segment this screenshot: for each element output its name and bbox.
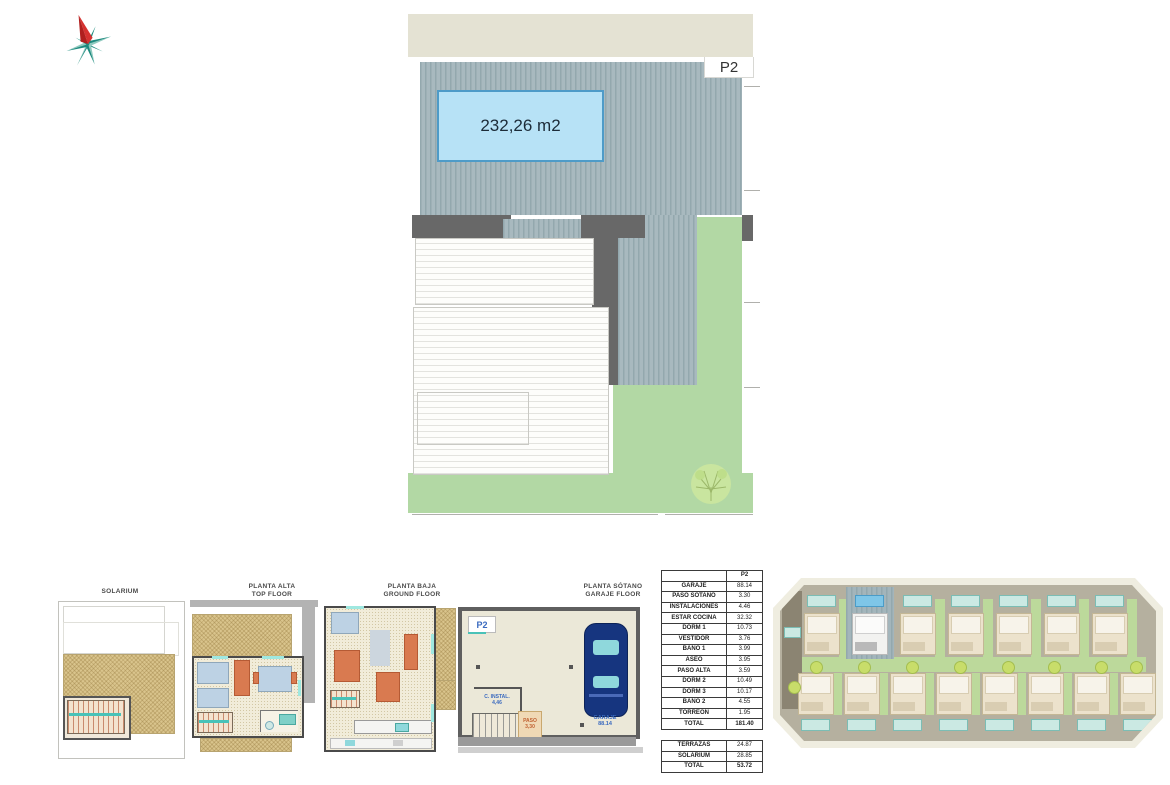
bathroom bbox=[260, 710, 298, 732]
area-table-value-cell: 3.95 bbox=[727, 655, 763, 666]
column bbox=[580, 723, 584, 727]
area-table-gap bbox=[662, 729, 763, 740]
house-roof-band bbox=[1077, 702, 1099, 711]
stairs bbox=[67, 700, 125, 734]
overview-house bbox=[900, 613, 936, 655]
solarium-plan bbox=[58, 601, 185, 759]
car-windshield bbox=[593, 640, 619, 655]
area-table-row: BAÑO 13.99 bbox=[662, 645, 763, 656]
appliance bbox=[393, 740, 403, 746]
area-table-room-cell: TERRAZAS bbox=[662, 740, 727, 751]
garaje-area-value: 88.14 bbox=[588, 721, 622, 727]
area-table-room-cell: PASO SOTANO bbox=[662, 592, 727, 603]
bed-double bbox=[258, 666, 292, 692]
window bbox=[431, 704, 434, 722]
area-table-room-cell: SOLARIUM bbox=[662, 751, 727, 762]
plot-label-chip bbox=[807, 595, 836, 607]
area-table-value-cell: 10.17 bbox=[727, 687, 763, 698]
bed bbox=[197, 662, 229, 684]
area-table-row: P2 bbox=[662, 571, 763, 582]
overview-house bbox=[890, 673, 926, 715]
house-roof-highlight bbox=[985, 676, 1015, 694]
house-roof-band bbox=[847, 702, 869, 711]
plot-green bbox=[925, 673, 934, 715]
tree-icon bbox=[1048, 661, 1061, 674]
planta-alta-title: PLANTA ALTA TOP FLOOR bbox=[222, 583, 322, 599]
plan-sheet: 232,26 m2 P2 SOLARIUM bbox=[0, 0, 1170, 785]
area-table-value-cell: 4.55 bbox=[727, 698, 763, 709]
plot-label-chip bbox=[847, 719, 876, 731]
area-table-row: VESTIDOR3.76 bbox=[662, 634, 763, 645]
tree-icon bbox=[858, 661, 871, 674]
compass-rose-icon bbox=[52, 8, 124, 80]
boundary-tick bbox=[744, 86, 760, 87]
roof-inset-outline bbox=[417, 392, 529, 445]
plot-label-chip bbox=[1095, 595, 1124, 607]
sink bbox=[395, 723, 409, 732]
boundary-tick bbox=[744, 302, 760, 303]
area-table-room-cell: GARAJE bbox=[662, 581, 727, 592]
area-table-row: INSTALACIONES4.46 bbox=[662, 602, 763, 613]
plot-green bbox=[983, 599, 993, 657]
area-table-value-cell: 1.95 bbox=[727, 708, 763, 719]
area-table-value-cell: 24.87 bbox=[727, 740, 763, 751]
area-table-row: ASEO3.95 bbox=[662, 655, 763, 666]
plot-area-label: 232,26 m2 bbox=[480, 116, 560, 136]
house-roof-highlight bbox=[855, 616, 885, 634]
tree-icon bbox=[1002, 661, 1015, 674]
area-table-row: PASO SOTANO3.30 bbox=[662, 592, 763, 603]
stair-rail bbox=[199, 720, 229, 723]
area-table-row: DORM 110.73 bbox=[662, 623, 763, 634]
garage-plot-label: P2 bbox=[476, 620, 487, 630]
area-table: P2GARAJE88.14PASO SOTANO3.30INSTALACIONE… bbox=[661, 570, 763, 773]
area-table-value-cell: 10.73 bbox=[727, 623, 763, 634]
area-table-row: TOTAL53.72 bbox=[662, 762, 763, 773]
main-site-plan: 232,26 m2 P2 bbox=[408, 14, 753, 514]
floor-interior bbox=[324, 606, 436, 752]
wall-side-upper bbox=[592, 238, 618, 307]
overview-house bbox=[948, 613, 984, 655]
planta-sotano-plan: P2 C. INSTAL. 4,46 PASO 3,30 bbox=[458, 603, 643, 755]
roof-notch bbox=[503, 219, 581, 238]
plot-chip-underline bbox=[468, 632, 486, 634]
area-table-room-cell: DORM 3 bbox=[662, 687, 727, 698]
house-roof-highlight bbox=[847, 676, 877, 694]
plot-label-chip bbox=[1047, 595, 1076, 607]
house-roof-highlight bbox=[939, 676, 969, 694]
planta-baja-plan bbox=[322, 600, 455, 757]
house-roof-highlight bbox=[951, 616, 981, 634]
planta-baja-title-line1: PLANTA BAJA bbox=[360, 583, 464, 591]
plot-green bbox=[1079, 599, 1089, 657]
plot-label-chip bbox=[903, 595, 932, 607]
area-table-room-cell: TOTAL bbox=[662, 719, 727, 730]
plot-label-chip bbox=[1031, 719, 1060, 731]
roof-deck-right bbox=[618, 215, 697, 385]
car-rear-window bbox=[593, 676, 619, 688]
area-table-row: SOLARIUM28.85 bbox=[662, 751, 763, 762]
bathtub bbox=[279, 714, 296, 725]
area-table-value-cell: 3.76 bbox=[727, 634, 763, 645]
plot-green bbox=[1063, 673, 1072, 715]
overview-house bbox=[804, 613, 840, 655]
house-roof-band bbox=[985, 702, 1007, 711]
column bbox=[476, 665, 480, 669]
house-roof-band bbox=[807, 642, 829, 651]
area-table-value-cell: 28.85 bbox=[727, 751, 763, 762]
area-table-room-cell: ESTAR COCINA bbox=[662, 613, 727, 624]
plot-green bbox=[1109, 673, 1118, 715]
house-roof-band bbox=[855, 642, 877, 651]
tree-icon bbox=[810, 661, 823, 674]
house-roof-highlight bbox=[1123, 676, 1153, 694]
street-strip bbox=[408, 14, 753, 57]
site-overview bbox=[773, 578, 1163, 748]
planta-sotano-title-line2: GARAJE FLOOR bbox=[558, 591, 668, 599]
plot-label-chip bbox=[1077, 719, 1106, 731]
overview-house bbox=[1092, 613, 1128, 655]
area-table-value-cell: P2 bbox=[727, 571, 763, 582]
house-roof-band bbox=[1095, 642, 1117, 651]
area-table-room-cell: ASEO bbox=[662, 655, 727, 666]
tree-icon bbox=[1095, 661, 1108, 674]
house-roof-band bbox=[903, 642, 925, 651]
house-roof-highlight bbox=[807, 616, 837, 634]
paso-area-value: 3,30 bbox=[519, 724, 541, 730]
plot-green bbox=[1017, 673, 1026, 715]
stair-rail bbox=[69, 713, 121, 716]
house-roof-highlight bbox=[999, 616, 1029, 634]
area-table-row: BAÑO 24.55 bbox=[662, 698, 763, 709]
house-roof-lower bbox=[413, 307, 609, 475]
planta-alta-title-line2: TOP FLOOR bbox=[222, 591, 322, 599]
plot-label-chip bbox=[893, 719, 922, 731]
nightstand bbox=[291, 672, 297, 684]
overview-house bbox=[844, 673, 880, 715]
area-table-value-cell: 3.99 bbox=[727, 645, 763, 656]
wall-sliver-right bbox=[742, 215, 753, 241]
area-table-row: TERRAZAS24.87 bbox=[662, 740, 763, 751]
boundary-tick bbox=[744, 387, 760, 388]
area-table-value-cell: 32.32 bbox=[727, 613, 763, 624]
rug bbox=[370, 630, 390, 666]
window bbox=[346, 606, 364, 609]
wardrobe bbox=[234, 660, 250, 696]
area-table-value-cell: 88.14 bbox=[727, 581, 763, 592]
area-table-value-cell: 3.59 bbox=[727, 666, 763, 677]
bed bbox=[197, 688, 229, 708]
area-table-value-cell: 3.30 bbox=[727, 592, 763, 603]
nightstand bbox=[253, 672, 259, 684]
overview-house bbox=[1044, 613, 1080, 655]
area-table-value-cell: 53.72 bbox=[727, 762, 763, 773]
tree-icon bbox=[788, 681, 801, 694]
house-roof-upper bbox=[415, 238, 594, 305]
sink bbox=[265, 721, 274, 730]
window bbox=[298, 680, 301, 696]
area-table-row: DORM 310.17 bbox=[662, 687, 763, 698]
overview-house bbox=[1028, 673, 1064, 715]
area-table-room-cell: BAÑO 1 bbox=[662, 645, 727, 656]
car-detail bbox=[589, 694, 623, 697]
garaje-label: GARAJE 88.14 bbox=[588, 715, 622, 727]
area-table-room-cell: INSTALACIONES bbox=[662, 602, 727, 613]
area-table-room-cell bbox=[662, 571, 727, 582]
car-icon bbox=[584, 623, 628, 717]
house-roof-highlight bbox=[1031, 676, 1061, 694]
area-table-room-cell: VESTIDOR bbox=[662, 634, 727, 645]
plot-green bbox=[1127, 599, 1137, 657]
garage-plot-chip: P2 bbox=[468, 616, 496, 633]
planta-sotano-title-line1: PLANTA SÓTANO bbox=[558, 583, 668, 591]
appliance bbox=[345, 740, 355, 746]
tree-icon bbox=[954, 661, 967, 674]
garage-interior: P2 C. INSTAL. 4,46 PASO 3,30 bbox=[458, 607, 640, 739]
house-roof-highlight bbox=[1095, 616, 1125, 634]
wall-top-left bbox=[412, 215, 511, 238]
area-table-row: ESTAR COCINA32.32 bbox=[662, 613, 763, 624]
planta-baja-title-line2: GROUND FLOOR bbox=[360, 591, 464, 599]
kitchen-units bbox=[334, 650, 360, 682]
area-table-row: TORREÓN1.95 bbox=[662, 708, 763, 719]
area-table-body: P2GARAJE88.14PASO SOTANO3.30INSTALACIONE… bbox=[662, 571, 763, 773]
window bbox=[431, 634, 434, 654]
area-table-value-cell: 181.40 bbox=[727, 719, 763, 730]
stair-rail bbox=[332, 697, 356, 700]
plot-label-chip bbox=[939, 719, 968, 731]
tree-icon bbox=[686, 461, 736, 511]
house-roof-band bbox=[801, 702, 823, 711]
neighbor-roof-strip bbox=[190, 600, 318, 607]
terrace-upper bbox=[192, 614, 292, 658]
window bbox=[262, 656, 284, 659]
house-roof-band bbox=[1031, 702, 1053, 711]
house-roof-highlight bbox=[801, 676, 831, 694]
area-table-room-cell: DORM 2 bbox=[662, 676, 727, 687]
plot-label-chip bbox=[801, 719, 830, 731]
plot-green bbox=[833, 673, 842, 715]
plot-label-chip bbox=[855, 595, 884, 607]
planta-sotano-title: PLANTA SÓTANO GARAJE FLOOR bbox=[558, 583, 668, 599]
plot-id-label: P2 bbox=[720, 59, 738, 76]
instal-room: C. INSTAL. 4,46 bbox=[474, 687, 522, 715]
plot-label-chip bbox=[999, 595, 1028, 607]
plot-green bbox=[1155, 673, 1164, 715]
planta-alta-plan bbox=[190, 600, 318, 757]
house-roof-band bbox=[893, 702, 915, 711]
house-roof-highlight bbox=[893, 676, 923, 694]
plot-green bbox=[971, 673, 980, 715]
overview-house bbox=[936, 673, 972, 715]
tree-icon bbox=[906, 661, 919, 674]
kitchen-lower-counter bbox=[330, 738, 432, 749]
access-chip bbox=[784, 627, 801, 638]
terrace-lower bbox=[200, 738, 292, 752]
plot-id-box: P2 bbox=[704, 57, 754, 78]
plot-green bbox=[935, 599, 945, 657]
area-table-row: TOTAL181.40 bbox=[662, 719, 763, 730]
plot-green bbox=[879, 673, 888, 715]
area-table-row: PASO ALTA3.59 bbox=[662, 666, 763, 677]
wall-top-right bbox=[581, 215, 645, 238]
boundary-line bbox=[412, 514, 658, 515]
bed bbox=[331, 612, 359, 634]
area-table-row: GARAJE88.14 bbox=[662, 581, 763, 592]
planta-alta-title-line1: PLANTA ALTA bbox=[222, 583, 322, 591]
house-roof-highlight bbox=[1047, 616, 1077, 634]
garage-stairs bbox=[472, 713, 520, 739]
area-table-value-cell: 10.49 bbox=[727, 676, 763, 687]
area-table-room-cell: TORREÓN bbox=[662, 708, 727, 719]
house-roof-band bbox=[1123, 702, 1145, 711]
boundary-line bbox=[665, 514, 753, 515]
plot-green bbox=[1031, 599, 1041, 657]
overview-house bbox=[1120, 673, 1156, 715]
solarium-title: SOLARIUM bbox=[70, 588, 170, 596]
plot-label-chip bbox=[1123, 719, 1152, 731]
area-table-value-cell: 4.46 bbox=[727, 602, 763, 613]
paso-area: PASO 3,30 bbox=[518, 711, 542, 739]
overview-house bbox=[852, 613, 888, 655]
solarium-stairwell bbox=[63, 696, 131, 740]
area-table-gap-cell bbox=[662, 729, 763, 740]
kitchen-counter bbox=[354, 720, 432, 734]
area-table-room-cell: BAÑO 2 bbox=[662, 698, 727, 709]
house-roof-band bbox=[939, 702, 961, 711]
plot-area-label-box: 232,26 m2 bbox=[437, 90, 604, 162]
plot-label-chip bbox=[985, 719, 1014, 731]
column bbox=[569, 665, 573, 669]
house-roof-highlight bbox=[903, 616, 933, 634]
area-table-row: DORM 210.49 bbox=[662, 676, 763, 687]
area-table-room-cell: PASO ALTA bbox=[662, 666, 727, 677]
dining-table bbox=[376, 672, 400, 702]
basement-road bbox=[458, 737, 636, 746]
overview-house bbox=[798, 673, 834, 715]
area-table-room-cell: TOTAL bbox=[662, 762, 727, 773]
boundary-tick bbox=[744, 190, 760, 191]
house-roof-band bbox=[951, 642, 973, 651]
sofa bbox=[404, 634, 418, 670]
planta-baja-title: PLANTA BAJA GROUND FLOOR bbox=[360, 583, 464, 599]
overview-house bbox=[1074, 673, 1110, 715]
instal-room-label: C. INSTAL. 4,46 bbox=[476, 694, 518, 706]
house-roof-band bbox=[999, 642, 1021, 651]
solarium-title-line: SOLARIUM bbox=[101, 588, 138, 595]
floor-interior bbox=[192, 656, 304, 738]
house-roof-highlight bbox=[1077, 676, 1107, 694]
area-table-room-cell: DORM 1 bbox=[662, 623, 727, 634]
house-roof-band bbox=[1047, 642, 1069, 651]
paso-label: PASO 3,30 bbox=[519, 718, 541, 730]
overview-house bbox=[996, 613, 1032, 655]
instal-area: 4,46 bbox=[476, 700, 518, 706]
window bbox=[212, 656, 228, 659]
tree-icon bbox=[1130, 661, 1143, 674]
basement-road-light bbox=[458, 747, 643, 753]
overview-house bbox=[982, 673, 1018, 715]
solarium-roof-outline2 bbox=[63, 622, 179, 656]
site-overview-inner bbox=[780, 585, 1156, 741]
plot-label-chip bbox=[951, 595, 980, 607]
